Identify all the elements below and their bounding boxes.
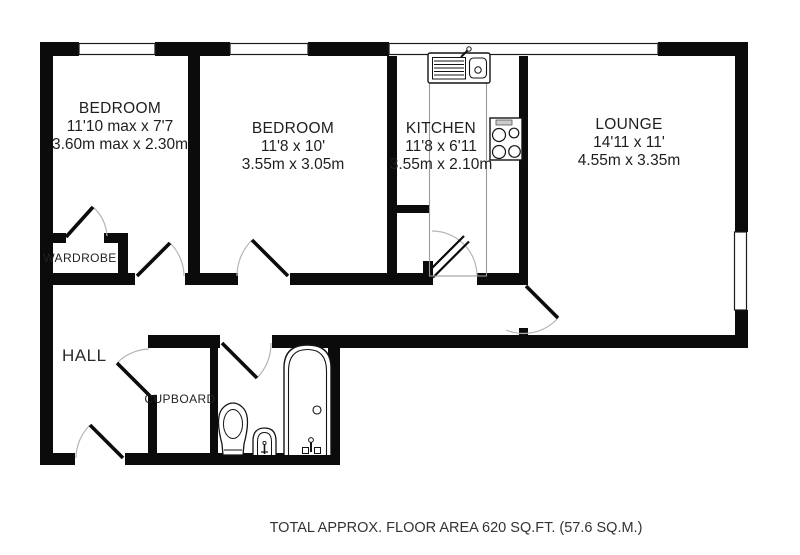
window (79, 44, 155, 55)
cupboard-label: CUPBOARD (144, 392, 215, 406)
room-size-m: 4.55m x 3.35m (578, 152, 681, 170)
windows (79, 44, 747, 311)
hall-label: HALL (62, 346, 107, 366)
room-name: BEDROOM (242, 120, 345, 138)
hob-icon (490, 118, 522, 160)
room-label-bedroom-1: BEDROOM 11'10 max x 7'7 3.60m max x 2.30… (52, 100, 188, 154)
door-arc (257, 343, 271, 378)
door-arc (93, 207, 107, 236)
wardrobe-label: WARDROBE (43, 251, 116, 265)
bedroom2-door-leaf (252, 240, 288, 276)
door-arc (76, 425, 90, 458)
room-name: BEDROOM (52, 100, 188, 118)
kitchen-counter (430, 83, 487, 277)
kitchen-door-leaf (428, 236, 469, 278)
floorplan-drawing (0, 0, 800, 555)
room-size-ft: 11'10 max x 7'7 (52, 118, 188, 136)
room-name: LOUNGE (578, 116, 681, 134)
wardrobe-door-leaf (66, 207, 93, 237)
door-arc (237, 240, 252, 276)
door-arc (170, 243, 184, 276)
window (230, 44, 308, 55)
room-size-m: 3.55m x 2.10m (390, 156, 493, 174)
room-size-m: 3.55m x 3.05m (242, 156, 345, 174)
toilet-icon (219, 403, 248, 455)
room-size-ft: 14'11 x 11' (578, 134, 681, 152)
door-arc (117, 349, 149, 363)
room-label-lounge: LOUNGE 14'11 x 11' 4.55m x 3.35m (578, 116, 681, 170)
room-size-ft: 11'8 x 10' (242, 138, 345, 156)
door-arc (432, 231, 477, 276)
window (735, 232, 747, 310)
bathroom-door-leaf (222, 343, 257, 378)
entrance-door-leaf (90, 425, 123, 458)
lounge-door-leaf (526, 286, 558, 318)
room-size-ft: 11'8 x 6'11 (390, 138, 493, 156)
bath-icon (284, 345, 331, 455)
room-size-m: 3.60m max x 2.30m (52, 136, 188, 154)
bedroom1-door-leaf (137, 243, 170, 276)
room-label-kitchen: KITCHEN 11'8 x 6'11 3.55m x 2.10m (390, 120, 493, 174)
room-name: KITCHEN (390, 120, 493, 138)
floorplan-page: BEDROOM 11'10 max x 7'7 3.60m max x 2.30… (0, 0, 800, 555)
room-label-bedroom-2: BEDROOM 11'8 x 10' 3.55m x 3.05m (242, 120, 345, 174)
basin-icon (253, 428, 276, 455)
total-floor-area-caption: TOTAL APPROX. FLOOR AREA 620 SQ.FT. (57.… (270, 520, 643, 536)
door-arc (506, 318, 558, 333)
